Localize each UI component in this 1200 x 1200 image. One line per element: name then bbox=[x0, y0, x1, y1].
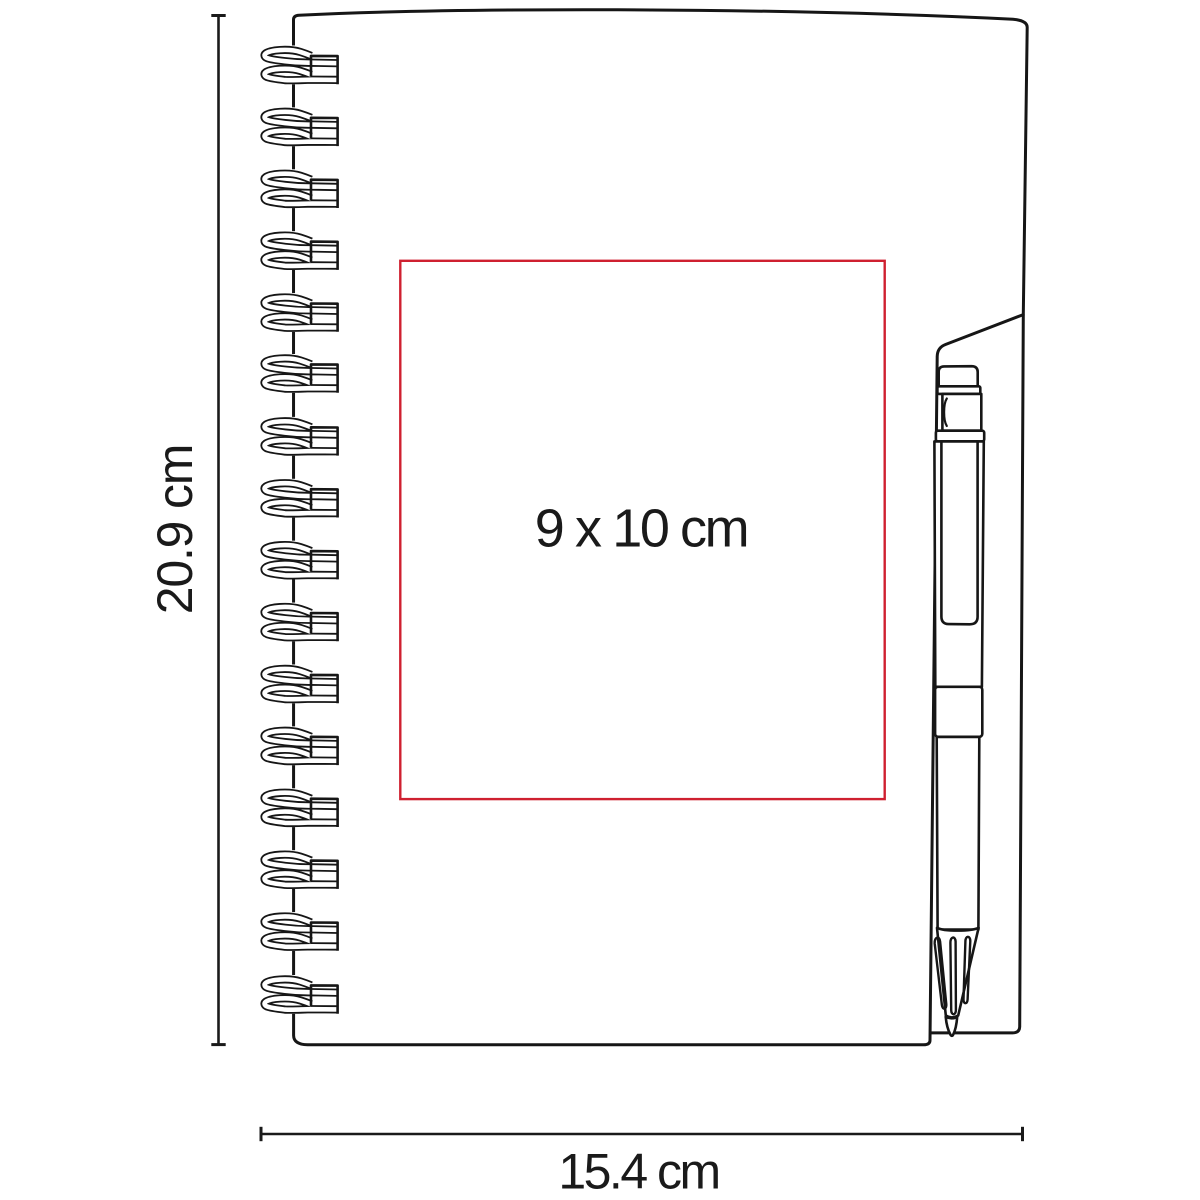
svg-text:20.9 cm: 20.9 cm bbox=[147, 445, 203, 614]
svg-text:15.4 cm: 15.4 cm bbox=[558, 1144, 718, 1200]
svg-text:9 x 10 cm: 9 x 10 cm bbox=[535, 499, 748, 559]
